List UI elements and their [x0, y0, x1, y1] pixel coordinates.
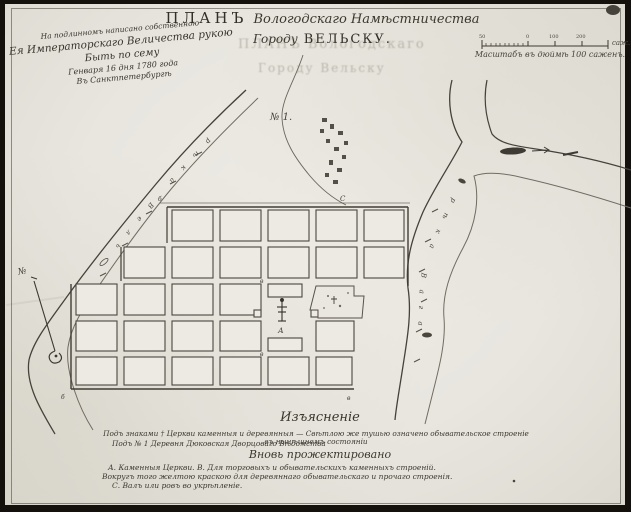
corner-letter-ne: С — [340, 195, 346, 203]
left-river-label: рѣка Вель — [106, 137, 213, 261]
flow-arrow-icon — [532, 147, 549, 153]
scale-tick: 0 — [526, 34, 529, 40]
title-line1-rest: Вологодскаго Намѣстничества — [253, 12, 479, 27]
islet — [458, 177, 467, 184]
svg-text:рѣка Вага: рѣка Вага — [415, 197, 458, 338]
title-word-gorodu: Городу — [253, 32, 298, 46]
letter-b-bottom: в — [260, 351, 264, 358]
corner-letter-se: в — [347, 395, 351, 402]
letter-a-church: А — [277, 326, 284, 335]
islet — [99, 257, 109, 266]
plaza-block-top — [268, 284, 302, 297]
right-river-label: рѣка Вага — [415, 197, 458, 338]
plaza-block-right — [311, 310, 318, 317]
river-island — [500, 147, 526, 155]
paper-crease — [6, 297, 64, 305]
corner-letter-sw: б — [61, 394, 65, 401]
compass-north-label: № — [16, 266, 28, 278]
old-town-parcel — [310, 286, 364, 318]
title-city-name: ВЕЛЬСКУ. — [304, 32, 392, 47]
svg-text:рѣка Вель: рѣка Вель — [106, 137, 213, 261]
scale-tick: 200 — [576, 34, 586, 40]
church-icon — [277, 299, 287, 321]
legend-line5: С. Валъ или ровъ во укрѣпленіе. — [112, 482, 412, 491]
legend-subheading: Вновь прожектировано — [190, 449, 450, 462]
ghost-title-line2: Городу Вельску — [258, 62, 386, 76]
ink-stain — [606, 5, 620, 15]
scale-bar — [482, 40, 608, 49]
scale-caption: Масштабъ въ дюймѣ 100 саженъ. — [468, 50, 631, 59]
compass-needle-icon — [31, 277, 62, 363]
village-no1-label: № 1. — [269, 112, 292, 123]
legend-heading: Изъясненіе — [190, 411, 450, 426]
plaza-block-left — [254, 310, 261, 317]
village-houses — [320, 118, 348, 184]
plaza-block-bottom — [268, 338, 302, 351]
letter-b-top: в — [260, 278, 264, 285]
scanned-map-plate: 50 0 100 200 саж. № 1. А в в С б б в № р… — [0, 0, 631, 512]
scale-unit-label: саж. — [612, 39, 630, 47]
scale-tick: 100 — [549, 34, 559, 40]
